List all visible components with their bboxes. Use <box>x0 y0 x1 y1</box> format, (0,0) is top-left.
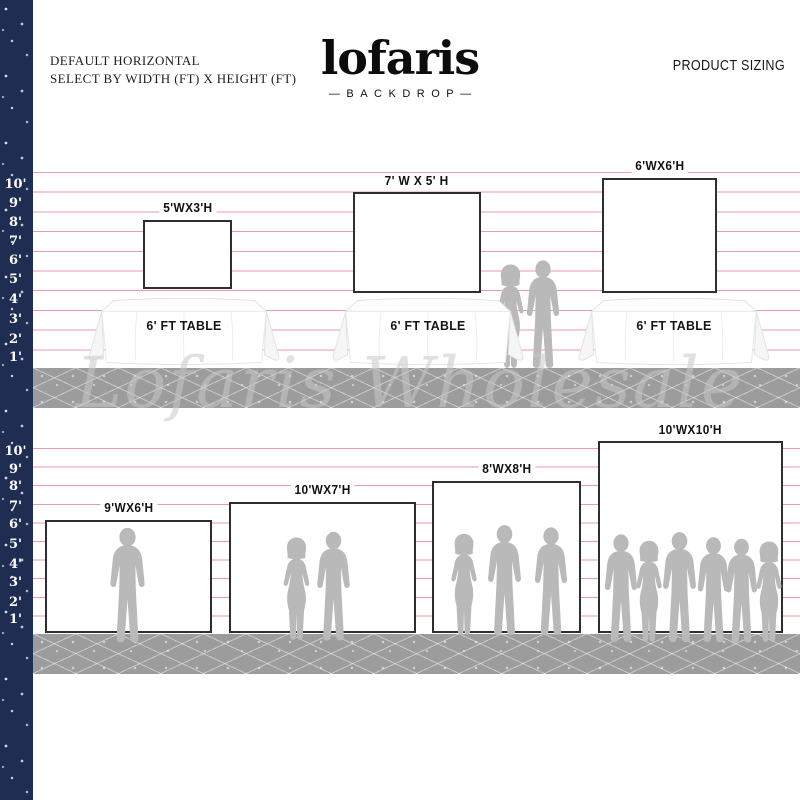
backdrop-label-5x3: 5'WX3'H <box>143 201 232 215</box>
person-silhouette-man <box>312 531 355 643</box>
ruler-strip <box>0 0 33 800</box>
ruler-top-7ft: 7' <box>0 234 31 249</box>
backdrop-label-7x5: 7' W X 5' H <box>353 174 481 188</box>
table-1: 6' FT TABLE <box>86 294 282 372</box>
backdrop-label-10x7: 10'WX7'H <box>229 483 416 497</box>
table-3-label: 6' FT TABLE <box>581 318 767 333</box>
product-sizing-page: { "header": { "line1": "DEFAULT HORIZONT… <box>0 0 800 800</box>
backdrop-label-6x6: 6'WX6'H <box>602 159 717 173</box>
table-2: 6' FT TABLE <box>330 294 526 372</box>
ruler-bottom-7ft: 7' <box>0 499 31 514</box>
person-silhouette-woman <box>444 532 484 638</box>
ruler-top-2ft: 2' <box>0 332 31 347</box>
ruler-bottom-3ft: 3' <box>0 575 31 590</box>
ruler-top-4ft: 4' <box>0 292 31 307</box>
tablecloth-graphic <box>576 294 772 372</box>
ruler-top-8ft: 8' <box>0 215 31 230</box>
person-silhouette-woman <box>749 540 789 645</box>
backdrop-5x3 <box>143 220 232 289</box>
person-silhouette-man <box>483 524 526 638</box>
ruler-top-9ft: 9' <box>0 196 31 211</box>
ruler-bottom-1ft: 1' <box>0 612 31 627</box>
ruler-top-5ft: 5' <box>0 272 31 287</box>
backdrop-7x5 <box>353 192 481 293</box>
ruler-top-10ft: 10' <box>0 177 31 192</box>
ruler-bottom-8ft: 8' <box>0 479 31 494</box>
table-3: 6' FT TABLE <box>576 294 772 372</box>
person-silhouette-man <box>530 526 572 638</box>
person-silhouette-man <box>522 259 564 371</box>
backdrop-label-8x8: 8'WX8'H <box>432 462 581 476</box>
table-1-label: 6' FT TABLE <box>91 318 277 333</box>
backdrop-label-9x6: 9'WX6'H <box>45 501 212 515</box>
backdrop-label-10x10: 10'WX10'H <box>598 423 783 437</box>
lofaris-logo: lofaris <box>250 34 550 82</box>
ruler-bottom-9ft: 9' <box>0 462 31 477</box>
ruler-top-1ft: 1' <box>0 350 31 365</box>
ruler-top-3ft: 3' <box>0 312 31 327</box>
header-subtitle-line1: DEFAULT HORIZONTAL <box>50 53 200 69</box>
person-silhouette-woman <box>276 536 317 643</box>
tablecloth-graphic <box>330 294 526 372</box>
tablecloth-graphic <box>86 294 282 372</box>
ruler-top-6ft: 6' <box>0 253 31 268</box>
ruler-bottom-10ft: 10' <box>0 444 31 459</box>
table-2-label: 6' FT TABLE <box>335 318 521 333</box>
ruler-bottom-6ft: 6' <box>0 517 31 532</box>
ruler-bottom-5ft: 5' <box>0 537 31 552</box>
floor-band-top <box>33 368 800 408</box>
person-silhouette-man <box>105 527 150 645</box>
ruler-bottom-2ft: 2' <box>0 595 31 610</box>
lofaris-logo-backdrop-text: —BACKDROP— <box>250 88 550 100</box>
product-sizing-title: PRODUCT SIZING <box>655 57 785 74</box>
backdrop-6x6 <box>602 178 717 293</box>
ruler-bottom-4ft: 4' <box>0 557 31 572</box>
